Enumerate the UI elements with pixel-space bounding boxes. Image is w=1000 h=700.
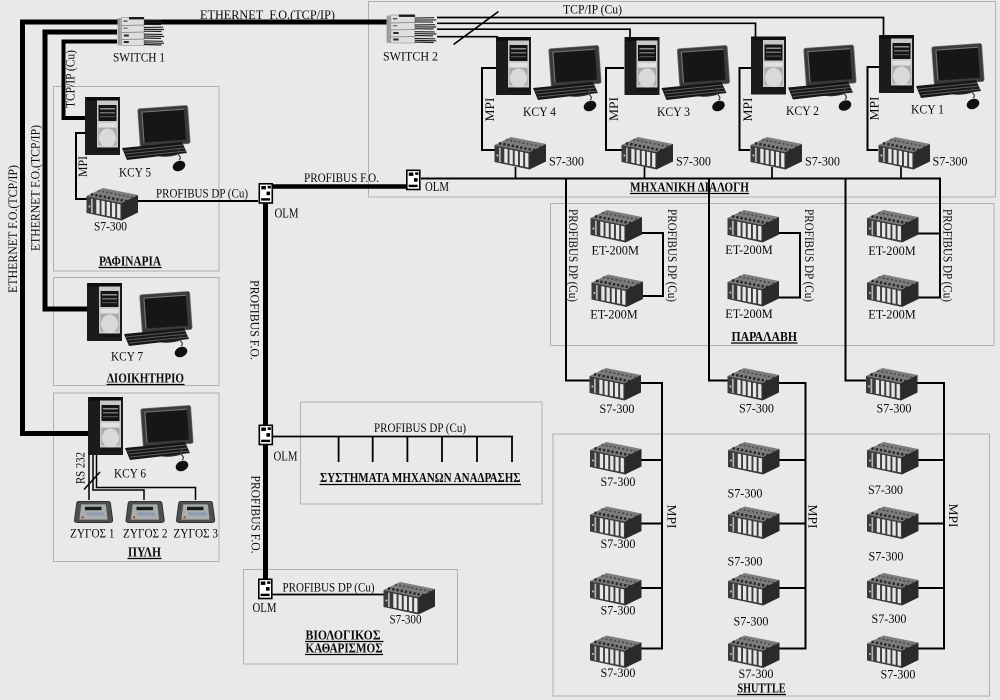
svg-text:TCP/IP (Cu): TCP/IP (Cu) (63, 50, 77, 108)
svg-text:MPI: MPI (946, 504, 960, 528)
svg-text:PROFIBUS DP (Cu): PROFIBUS DP (Cu) (566, 209, 580, 302)
svg-text:PROFIBUS DP (Cu): PROFIBUS DP (Cu) (374, 420, 466, 435)
svg-text:KCY 1: KCY 1 (911, 102, 944, 117)
svg-text:OLM: OLM (253, 600, 277, 615)
svg-text:PROFIBUS F.O.: PROFIBUS F.O. (248, 476, 262, 554)
svg-text:S7-300: S7-300 (872, 612, 907, 626)
svg-text:MPI: MPI (664, 505, 678, 529)
svg-text:OLM: OLM (275, 206, 299, 221)
svg-text:S7-300: S7-300 (390, 613, 422, 627)
svg-text:ETHERNET F.O.(TCP/IP): ETHERNET F.O.(TCP/IP) (28, 125, 42, 251)
svg-text:S7-300: S7-300 (881, 668, 916, 682)
svg-text:S7-300: S7-300 (869, 550, 904, 564)
svg-text:PROFIBUS DP (Cu): PROFIBUS DP (Cu) (940, 209, 954, 302)
svg-text:S7-300: S7-300 (728, 487, 763, 501)
svg-text:MPI: MPI (805, 505, 819, 529)
svg-text:ETHERNET F.O.(TCP/IP): ETHERNET F.O.(TCP/IP) (200, 7, 335, 22)
svg-text:ΣΥΣΤΗΜΑΤΑ ΜΗΧΑΝΩΝ ΑΝΑΔΡΑΣΗΣ: ΣΥΣΤΗΜΑΤΑ ΜΗΧΑΝΩΝ ΑΝΑΔΡΑΣΗΣ (320, 470, 521, 485)
svg-text:S7-300: S7-300 (734, 615, 769, 629)
svg-text:MPI: MPI (741, 98, 755, 122)
svg-text:ΠΥΛΗ: ΠΥΛΗ (128, 545, 161, 560)
svg-text:ET-200M: ET-200M (725, 243, 773, 257)
svg-text:S7-300: S7-300 (728, 555, 763, 569)
svg-text:S7-300: S7-300 (739, 402, 774, 416)
svg-text:PROFIBUS DP (Cu): PROFIBUS DP (Cu) (283, 580, 375, 595)
svg-text:ΠΑΡΑΛΑΒΗ: ΠΑΡΑΛΑΒΗ (732, 329, 798, 344)
svg-text:KCY 7: KCY 7 (111, 349, 143, 364)
svg-text:PROFIBUS F.O.: PROFIBUS F.O. (247, 280, 261, 360)
svg-text:S7-300: S7-300 (601, 537, 636, 551)
svg-text:KCY 5: KCY 5 (119, 165, 151, 180)
svg-text:S7-300: S7-300 (868, 483, 903, 497)
svg-text:ET-200M: ET-200M (591, 244, 639, 258)
svg-text:KCY 2: KCY 2 (786, 103, 819, 118)
svg-text:RS 232: RS 232 (73, 452, 87, 484)
svg-text:ΔΙΟΙΚΗΤΗΡΙΟ: ΔΙΟΙΚΗΤΗΡΙΟ (107, 371, 184, 386)
svg-text:PROFIBUS DP (Cu): PROFIBUS DP (Cu) (156, 186, 248, 201)
svg-text:MPI: MPI (607, 97, 621, 121)
svg-text:MPI: MPI (483, 98, 497, 122)
svg-text:ΖΥΓΟΣ 3: ΖΥΓΟΣ 3 (174, 526, 219, 541)
svg-text:KCY 3: KCY 3 (657, 104, 690, 119)
svg-text:S7-300: S7-300 (94, 220, 127, 234)
svg-text:OLM: OLM (425, 179, 449, 194)
svg-text:MPI: MPI (867, 97, 881, 121)
svg-text:S7-300: S7-300 (601, 666, 636, 680)
svg-text:KCY 4: KCY 4 (523, 104, 556, 119)
svg-text:ET-200M: ET-200M (590, 308, 638, 322)
svg-text:KCY 6: KCY 6 (114, 466, 146, 481)
svg-text:ΡΑΦΙΝΑΡΙΑ: ΡΑΦΙΝΑΡΙΑ (99, 254, 161, 269)
svg-text:S7-300: S7-300 (877, 402, 912, 416)
svg-text:ΜΗΧΑΝΙΚΗ ΔΙΑΛΟΓΗ: ΜΗΧΑΝΙΚΗ ΔΙΑΛΟΓΗ (630, 180, 749, 195)
svg-text:ETHERNET F.O.(TCP/IP): ETHERNET F.O.(TCP/IP) (6, 165, 20, 293)
svg-text:SHUTTLE: SHUTTLE (738, 681, 786, 696)
svg-text:ΖΥΓΟΣ 2: ΖΥΓΟΣ 2 (123, 526, 168, 541)
svg-text:S7-300: S7-300 (805, 155, 840, 169)
svg-text:ΖΥΓΟΣ 1: ΖΥΓΟΣ 1 (70, 526, 115, 541)
svg-text:PROFIBUS DP (Cu): PROFIBUS DP (Cu) (665, 209, 679, 302)
svg-text:PROFIBUS F.O.: PROFIBUS F.O. (304, 170, 379, 185)
svg-text:S7-300: S7-300 (676, 155, 711, 169)
svg-text:SWITCH 1: SWITCH 1 (113, 50, 165, 65)
svg-text:ET-200M: ET-200M (868, 308, 916, 322)
svg-text:S7-300: S7-300 (600, 402, 635, 416)
svg-text:S7-300: S7-300 (549, 155, 584, 169)
svg-text:S7-300: S7-300 (601, 604, 636, 618)
svg-text:SWITCH 2: SWITCH 2 (383, 49, 438, 64)
svg-text:S7-300: S7-300 (739, 667, 774, 681)
svg-text:S7-300: S7-300 (601, 475, 636, 489)
svg-text:TCP/IP (Cu): TCP/IP (Cu) (563, 2, 622, 17)
svg-text:ET-200M: ET-200M (725, 307, 773, 321)
svg-text:OLM: OLM (274, 449, 298, 464)
svg-text:MPI: MPI (76, 156, 90, 177)
svg-text:S7-300: S7-300 (933, 155, 968, 169)
svg-text:PROFIBUS DP (Cu): PROFIBUS DP (Cu) (802, 209, 816, 302)
svg-text:ET-200M: ET-200M (868, 244, 916, 258)
svg-text:ΚΑΘΑΡΙΣΜΟΣ: ΚΑΘΑΡΙΣΜΟΣ (306, 641, 383, 656)
